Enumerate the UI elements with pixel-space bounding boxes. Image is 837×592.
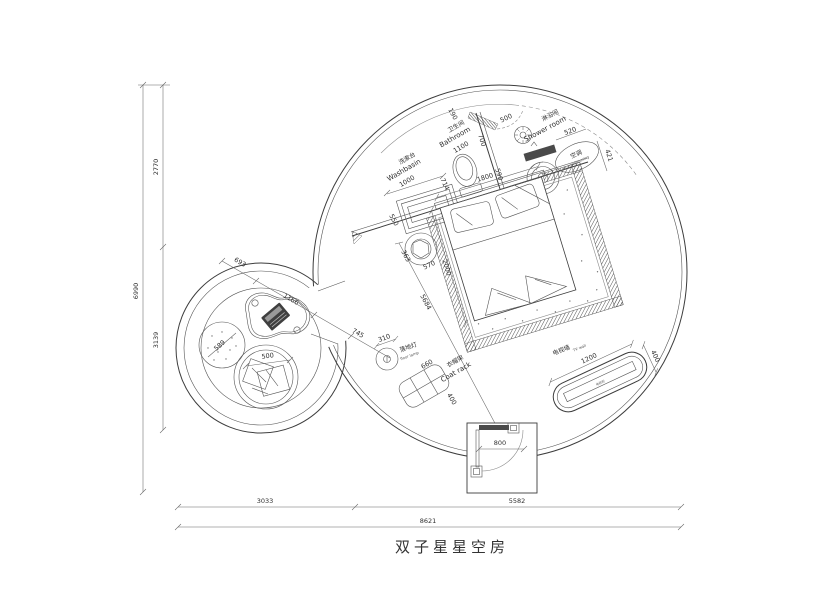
svg-text:520: 520 [563, 125, 577, 137]
entry-door-panel [479, 425, 509, 430]
svg-text:2770: 2770 [152, 159, 160, 176]
bathroom-door-leaf [468, 112, 498, 130]
dim-bottom-segments: 3033 5582 [175, 497, 684, 510]
svg-text:660: 660 [420, 358, 435, 371]
svg-text:5582: 5582 [509, 497, 526, 505]
svg-text:700: 700 [476, 133, 487, 147]
svg-text:3033: 3033 [257, 497, 274, 505]
tv-wall: 电视柜 1200 400 [542, 327, 667, 419]
svg-text:310: 310 [377, 332, 391, 344]
sink-dims: 363 570 [399, 249, 436, 272]
svg-text:589: 589 [212, 338, 227, 352]
dim-bottom-total: 8621 [175, 517, 684, 530]
lounge-chair: 500 [234, 345, 298, 409]
dim-left-segments: 2770 3139 [152, 82, 166, 433]
dim-left-total: 6990 [132, 82, 170, 495]
bed-platform-group: 1800 2000 [419, 146, 623, 352]
shower-labels: 淋浴间 Shower room 520 421 [523, 107, 615, 171]
svg-text:590: 590 [493, 167, 504, 181]
svg-text:800: 800 [494, 439, 506, 447]
svg-text:550: 550 [387, 213, 400, 228]
floor-plan-page: 1800 2000 5684 电视柜 1200 400 电视墙 TV wall [0, 0, 837, 592]
entrance-vestibule: 800 [467, 423, 537, 493]
svg-text:570: 570 [422, 259, 437, 272]
svg-text:1166: 1166 [282, 292, 300, 307]
svg-text:3139: 3139 [152, 332, 160, 349]
svg-text:1800: 1800 [476, 171, 494, 183]
svg-text:500: 500 [499, 112, 514, 125]
svg-text:5684: 5684 [418, 293, 433, 311]
svg-text:8621: 8621 [420, 517, 437, 525]
toilet [449, 151, 483, 197]
drawing-title: 双子星星空房 [395, 538, 509, 556]
svg-text:400: 400 [445, 392, 458, 407]
shower-bench [524, 144, 557, 161]
floor-plan-drawing: 1800 2000 5684 电视柜 1200 400 电视墙 TV wall [0, 0, 837, 592]
tv-wall-label-cn: 电视墙 [551, 343, 571, 357]
svg-text:6990: 6990 [132, 283, 140, 300]
dim-tv-width: 1200 [544, 335, 636, 386]
tv-wall-label-en: TV wall [571, 343, 586, 353]
table-tray [261, 302, 290, 330]
svg-text:190: 190 [446, 107, 459, 122]
svg-text:421: 421 [603, 148, 614, 162]
svg-text:1200: 1200 [580, 351, 598, 365]
tv-cabinet-label: 电视柜 [595, 378, 607, 387]
svg-text:500: 500 [261, 351, 274, 361]
bench-mark [531, 142, 537, 146]
